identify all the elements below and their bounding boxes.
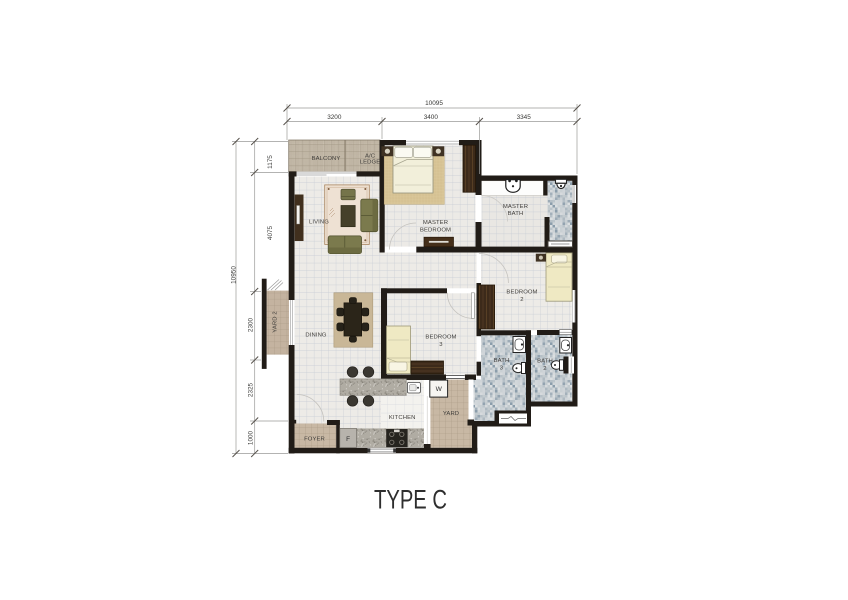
svg-text:2: 2 bbox=[520, 297, 523, 303]
svg-text:BATH: BATH bbox=[537, 359, 553, 365]
svg-text:FOYER: FOYER bbox=[304, 437, 325, 443]
svg-text:BATH: BATH bbox=[494, 358, 510, 364]
svg-text:YARD: YARD bbox=[443, 411, 459, 417]
svg-text:BEDROOM: BEDROOM bbox=[425, 335, 456, 341]
svg-text:KITCHEN: KITCHEN bbox=[389, 415, 416, 421]
svg-text:2: 2 bbox=[543, 366, 546, 372]
svg-text:LEDGE: LEDGE bbox=[360, 160, 380, 166]
svg-text:2325: 2325 bbox=[248, 382, 255, 397]
svg-text:DINING: DINING bbox=[305, 333, 327, 339]
svg-text:F: F bbox=[346, 436, 350, 443]
svg-text:4075: 4075 bbox=[267, 225, 274, 240]
svg-text:1175: 1175 bbox=[267, 155, 274, 169]
svg-text:10950: 10950 bbox=[231, 266, 238, 284]
svg-text:10095: 10095 bbox=[425, 100, 443, 107]
svg-text:1000: 1000 bbox=[248, 430, 255, 445]
svg-text:W: W bbox=[436, 386, 443, 393]
svg-text:A/C: A/C bbox=[365, 153, 376, 159]
svg-text:3345: 3345 bbox=[517, 114, 532, 121]
svg-text:BEDROOM: BEDROOM bbox=[506, 289, 537, 295]
svg-text:LIVING: LIVING bbox=[309, 219, 329, 225]
svg-text:MASTER: MASTER bbox=[423, 220, 448, 226]
svg-text:3400: 3400 bbox=[424, 114, 439, 121]
svg-text:BEDROOM: BEDROOM bbox=[420, 228, 451, 234]
svg-text:BALCONY: BALCONY bbox=[312, 156, 341, 162]
svg-text:YARD 2: YARD 2 bbox=[273, 311, 279, 332]
svg-text:MASTER: MASTER bbox=[503, 204, 528, 210]
svg-text:TYPE C: TYPE C bbox=[374, 485, 447, 515]
svg-text:2300: 2300 bbox=[248, 317, 255, 332]
svg-text:3200: 3200 bbox=[327, 114, 342, 121]
svg-text:BATH: BATH bbox=[508, 211, 524, 217]
